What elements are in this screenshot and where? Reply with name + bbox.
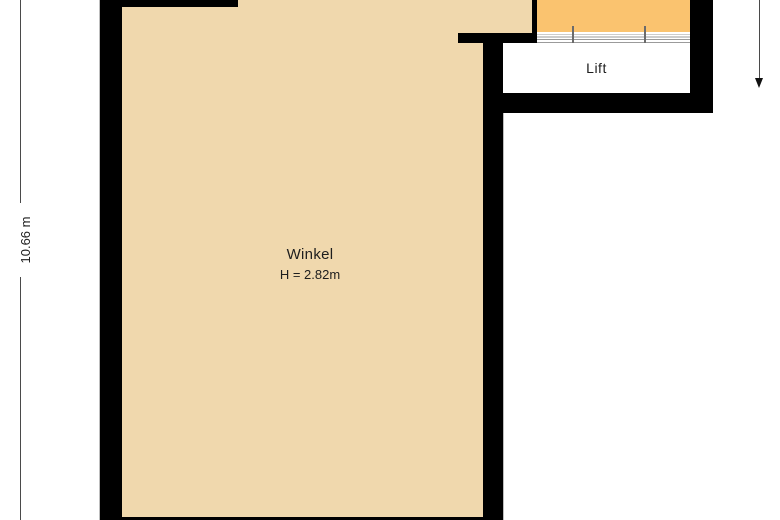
wall-partition-thin	[532, 0, 537, 33]
down-arrow-icon	[755, 78, 763, 88]
left-dimension-line-upper	[20, 0, 21, 203]
shaft-area	[537, 0, 690, 32]
wall-lift-bottom	[483, 93, 713, 113]
wall-left	[100, 0, 122, 520]
room-winkel-height-label: H = 2.82m	[210, 267, 410, 282]
room-winkel-label-group: Winkel H = 2.82m	[210, 246, 410, 282]
room-lift-label: Lift	[586, 60, 607, 76]
wall-right-outer	[690, 0, 713, 113]
wall-outline-left	[99, 0, 100, 520]
room-lift: Lift	[503, 43, 690, 93]
floor-plan: 10.66 m Lift Winkel H = 2.82m	[0, 0, 780, 520]
right-dimension-line	[759, 0, 760, 80]
wall-right-winkel	[483, 42, 503, 520]
lift-door-hatch	[537, 32, 690, 43]
room-winkel-label: Winkel	[210, 246, 410, 263]
wall-top-fragment	[100, 0, 238, 7]
wall-outline-right	[503, 113, 504, 520]
room-winkel-floor-extension	[483, 0, 533, 33]
left-dimension-line-lower	[20, 277, 21, 520]
